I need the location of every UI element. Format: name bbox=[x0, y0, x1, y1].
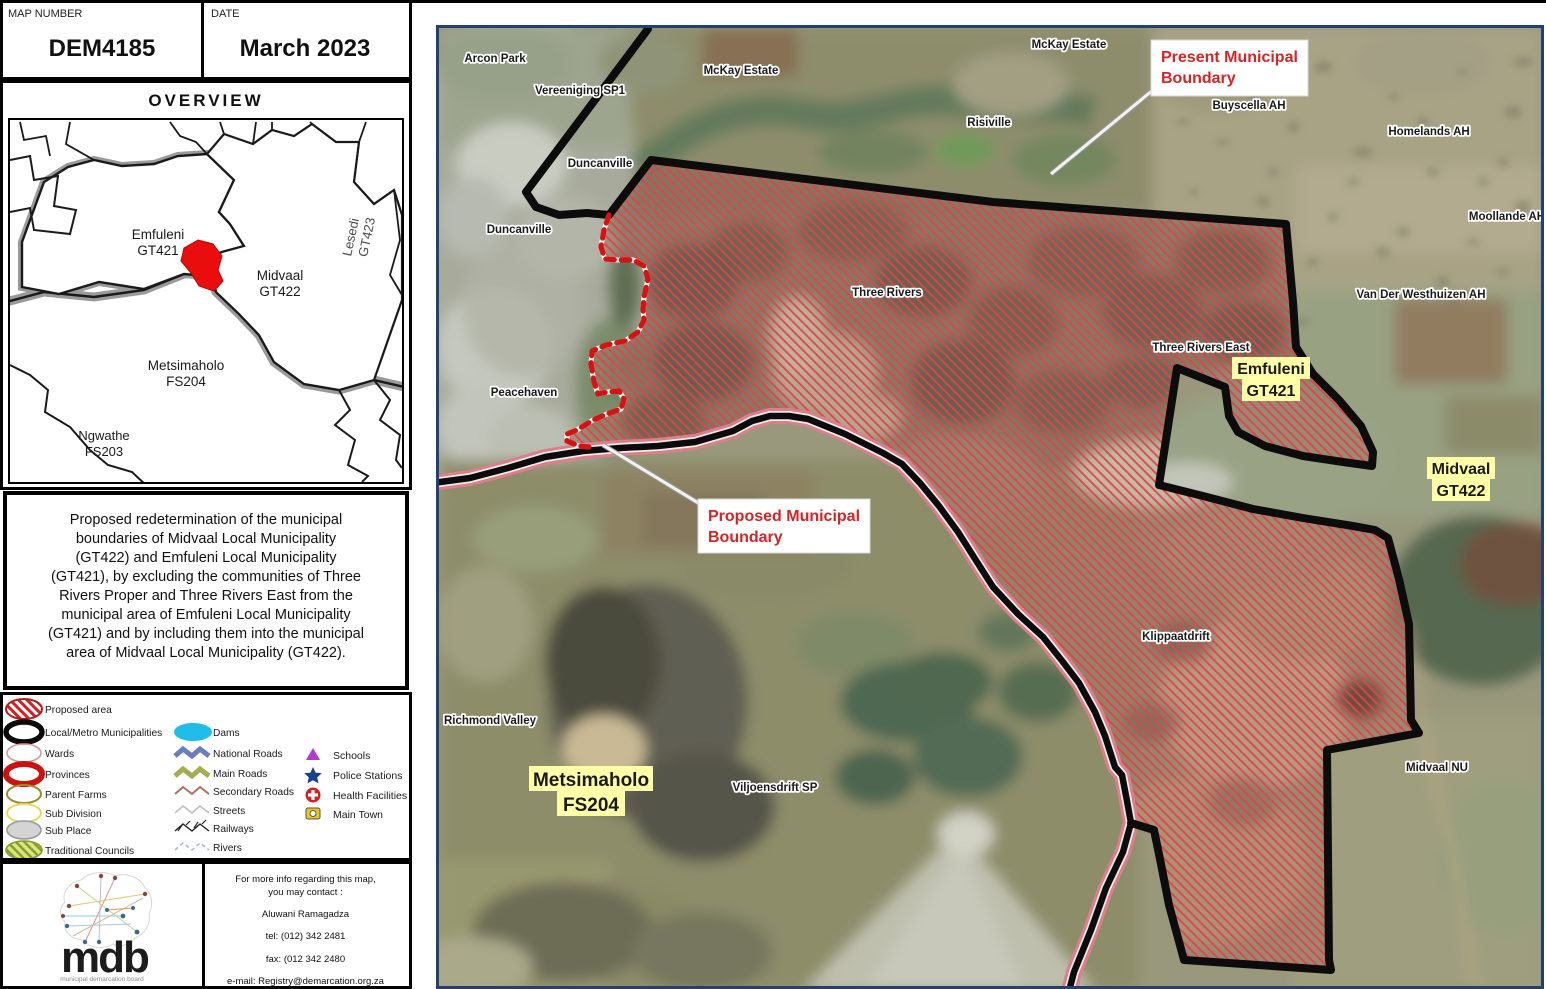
svg-text:Klippaatdrift: Klippaatdrift bbox=[1142, 631, 1210, 643]
svg-text:McKay Estate: McKay Estate bbox=[1032, 39, 1107, 51]
svg-text:Midvaal NU: Midvaal NU bbox=[1406, 762, 1468, 774]
svg-text:Duncanville: Duncanville bbox=[568, 158, 633, 170]
svg-text:Homelands AH: Homelands AH bbox=[1388, 126, 1469, 138]
svg-text:Buyscella AH: Buyscella AH bbox=[1212, 100, 1285, 112]
svg-text:FS204: FS204 bbox=[563, 795, 619, 816]
svg-text:Local/Metro Municipalities: Local/Metro Municipalities bbox=[45, 728, 162, 739]
svg-text:Peacehaven: Peacehaven bbox=[491, 387, 558, 399]
svg-text:Duncanville: Duncanville bbox=[487, 224, 552, 236]
svg-text:Sub Place: Sub Place bbox=[45, 826, 92, 837]
svg-text:Police Stations: Police Stations bbox=[333, 770, 402, 782]
svg-text:Railways: Railways bbox=[213, 824, 254, 835]
svg-text:Moollande AH: Moollande AH bbox=[1469, 211, 1541, 223]
svg-text:Secondary Roads: Secondary Roads bbox=[213, 787, 294, 798]
svg-text:Dams: Dams bbox=[213, 728, 240, 739]
svg-text:Boundary: Boundary bbox=[708, 529, 783, 546]
svg-text:GT422: GT422 bbox=[1437, 483, 1486, 500]
svg-text:Richmond Valley: Richmond Valley bbox=[444, 715, 537, 727]
svg-text:Three Rivers East: Three Rivers East bbox=[1152, 342, 1249, 354]
svg-text:Metsimaholo: Metsimaholo bbox=[533, 770, 649, 791]
svg-text:Viljoensdrift SP: Viljoensdrift SP bbox=[733, 782, 818, 794]
svg-text:Three Rivers: Three Rivers bbox=[852, 287, 922, 299]
svg-text:Proposed area: Proposed area bbox=[45, 705, 112, 716]
svg-text:Proposed Municipal: Proposed Municipal bbox=[708, 508, 860, 525]
svg-text:Emfuleni: Emfuleni bbox=[132, 227, 185, 242]
svg-text:Present Municipal: Present Municipal bbox=[1161, 49, 1298, 66]
svg-text:Main Roads: Main Roads bbox=[213, 769, 267, 780]
svg-text:Traditional Councils: Traditional Councils bbox=[45, 846, 134, 857]
svg-text:GT421: GT421 bbox=[1247, 383, 1296, 400]
svg-text:Risiville: Risiville bbox=[967, 117, 1010, 129]
svg-text:Arcon Park: Arcon Park bbox=[464, 53, 526, 65]
svg-text:FS204: FS204 bbox=[166, 374, 206, 389]
svg-text:mdb: mdb bbox=[61, 933, 149, 982]
svg-text:Sub Division: Sub Division bbox=[45, 809, 102, 820]
svg-text:Ngwathe: Ngwathe bbox=[78, 428, 129, 443]
svg-text:Main Town: Main Town bbox=[333, 809, 383, 821]
svg-text:National Roads: National Roads bbox=[213, 749, 283, 760]
svg-text:Rivers: Rivers bbox=[213, 843, 242, 854]
svg-text:Boundary: Boundary bbox=[1161, 70, 1236, 87]
svg-text:GT422: GT422 bbox=[259, 284, 300, 299]
svg-text:municipal demarcation board: municipal demarcation board bbox=[60, 976, 144, 983]
svg-text:Provinces: Provinces bbox=[45, 770, 90, 781]
svg-text:Schools: Schools bbox=[333, 750, 370, 762]
svg-text:Streets: Streets bbox=[213, 806, 245, 817]
svg-text:Health Facilities: Health Facilities bbox=[333, 790, 407, 802]
svg-text:FS203: FS203 bbox=[85, 444, 123, 459]
svg-text:Vereeniging SP1: Vereeniging SP1 bbox=[535, 85, 626, 97]
svg-text:Wards: Wards bbox=[45, 749, 74, 760]
svg-text:Parent Farms: Parent Farms bbox=[45, 790, 107, 801]
svg-text:McKay Estate: McKay Estate bbox=[704, 65, 779, 77]
svg-text:GT421: GT421 bbox=[137, 243, 178, 258]
svg-text:Van Der Westhuizen AH: Van Der Westhuizen AH bbox=[1356, 289, 1485, 301]
svg-text:Emfuleni: Emfuleni bbox=[1237, 361, 1305, 378]
svg-text:Midvaal: Midvaal bbox=[257, 268, 304, 283]
svg-text:Midvaal: Midvaal bbox=[1432, 461, 1491, 478]
svg-text:Metsimaholo: Metsimaholo bbox=[148, 358, 225, 373]
